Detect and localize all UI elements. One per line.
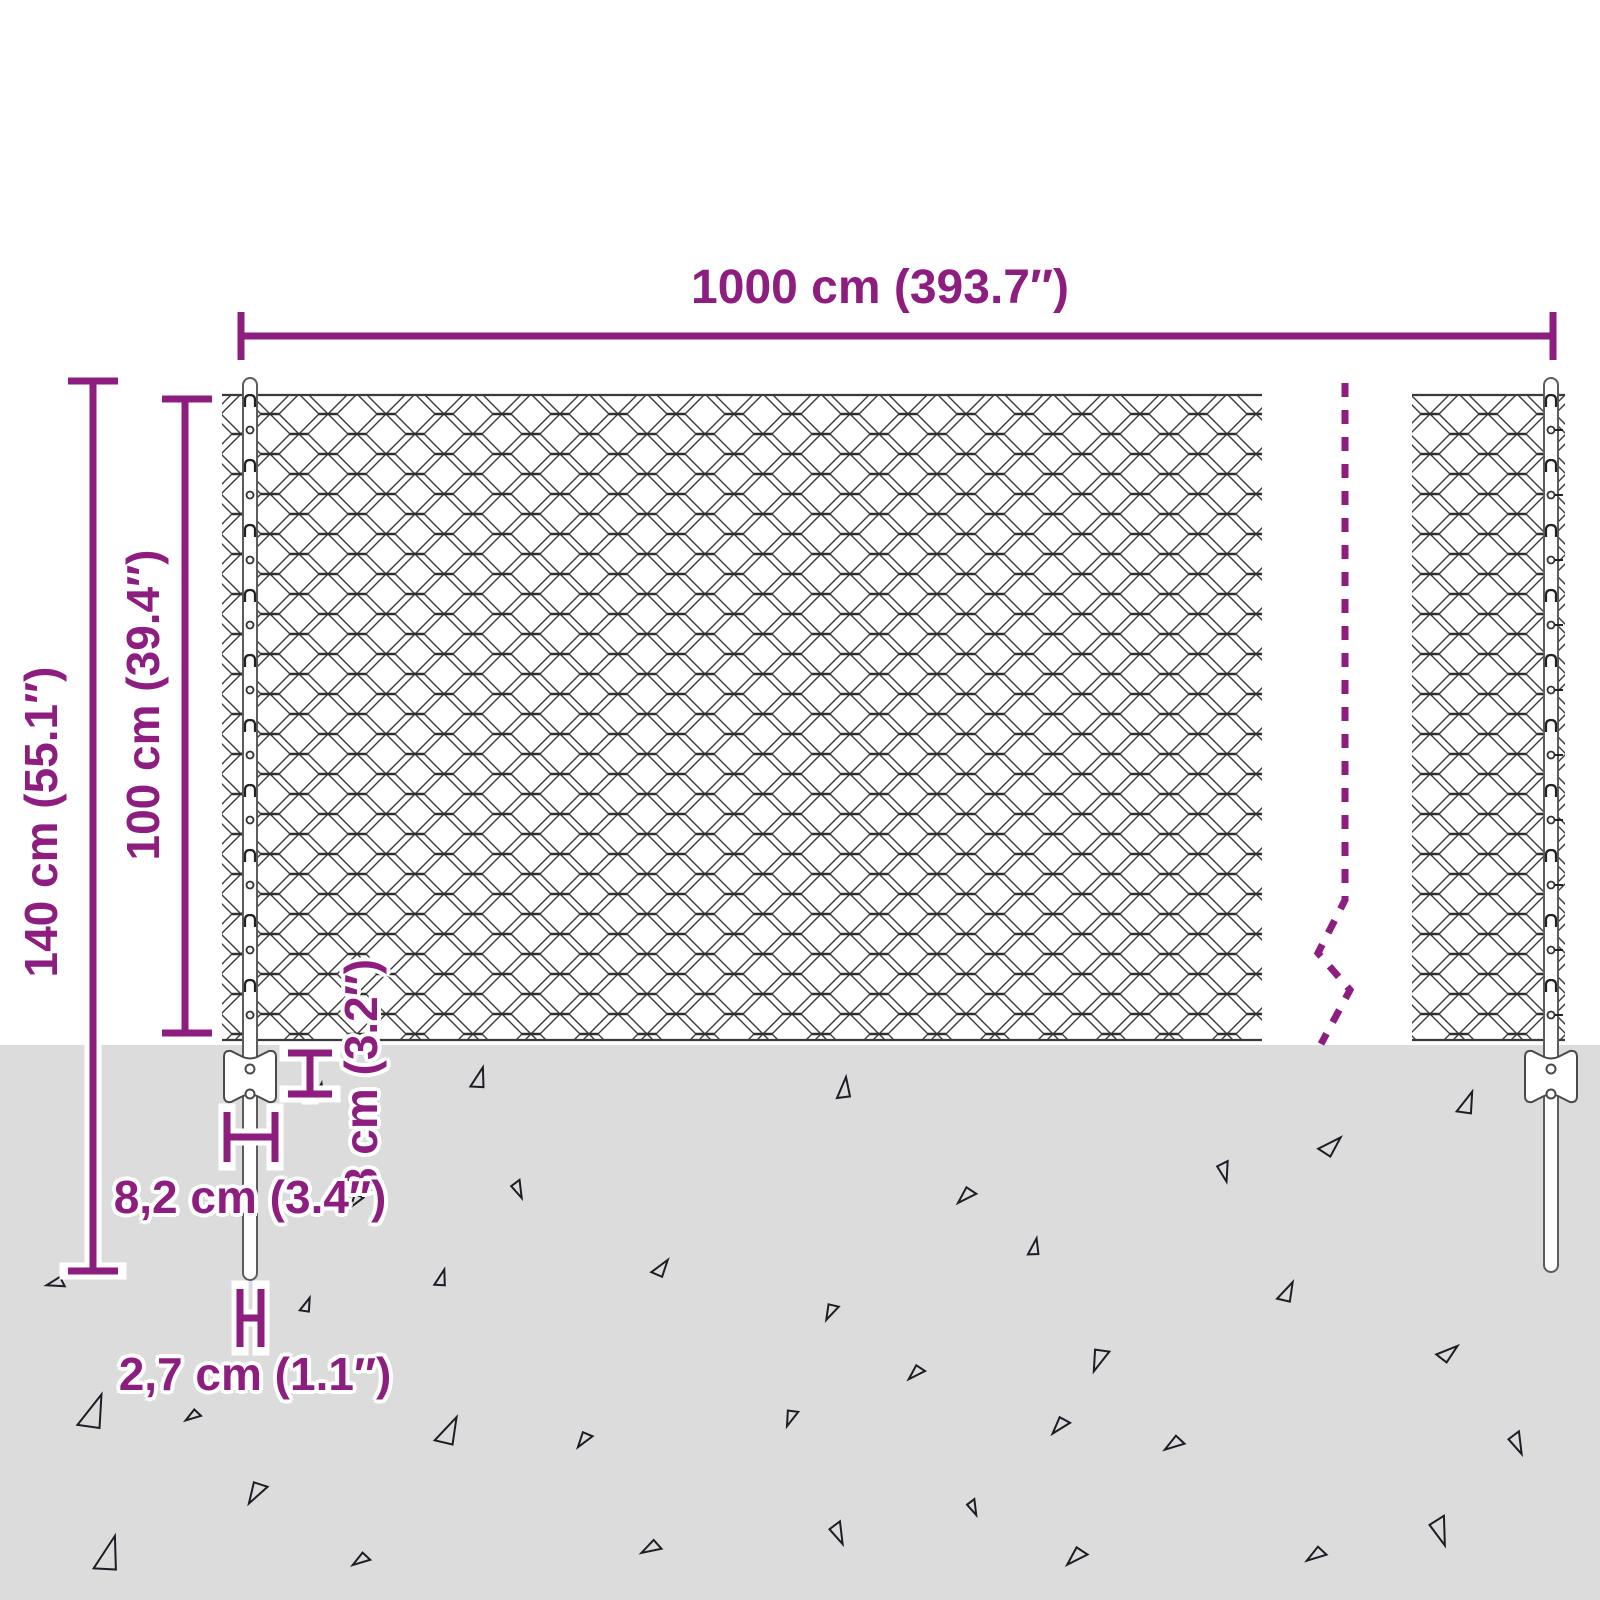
wire-clip	[1548, 1012, 1555, 1019]
label-post-diameter: 2,7 cm (1.1″)	[119, 1351, 392, 1397]
label-anchor-width: 8,2 cm (3.4″)	[114, 1174, 387, 1220]
label-total-height: 140 cm (55.1″)	[18, 667, 64, 978]
label-anchor-depth: 8 cm (3.2″)	[338, 959, 384, 1193]
post-anchor-plate-left	[224, 1051, 276, 1102]
wire-clip	[1548, 557, 1555, 564]
fence-mesh-main-panel	[222, 394, 1262, 1040]
wire-clip	[1548, 622, 1555, 629]
wire-clip	[247, 817, 254, 824]
wire-clip	[1548, 752, 1555, 759]
wire-clip	[247, 492, 254, 499]
post-anchor-plate-right	[1525, 1051, 1577, 1102]
wire-clip	[247, 557, 254, 564]
wire-clip	[247, 622, 254, 629]
wire-clip	[1548, 492, 1555, 499]
wire-clip	[1548, 817, 1555, 824]
length-break-dashed-line	[1318, 383, 1350, 1044]
dimension-line-width	[241, 312, 1553, 360]
wire-clip	[247, 427, 254, 434]
label-width: 1000 cm (393.7″)	[691, 264, 1069, 312]
fence-mesh-right-panel	[1412, 394, 1565, 1040]
wire-clip	[247, 947, 254, 954]
label-fence-height: 100 cm (39.4″)	[120, 550, 166, 861]
wire-clip	[247, 882, 254, 889]
wire-clip	[1548, 427, 1555, 434]
wire-clip	[247, 687, 254, 694]
wire-clip	[1548, 947, 1555, 954]
wire-clip	[247, 1012, 254, 1019]
wire-clip	[1548, 882, 1555, 889]
wire-clip	[247, 752, 254, 759]
dimension-line-fence-height	[162, 399, 212, 1033]
wire-clip	[1548, 687, 1555, 694]
fence-dimension-diagram: 1000 cm (393.7″) 140 cm (55.1″) 100 cm (…	[0, 0, 1600, 1600]
